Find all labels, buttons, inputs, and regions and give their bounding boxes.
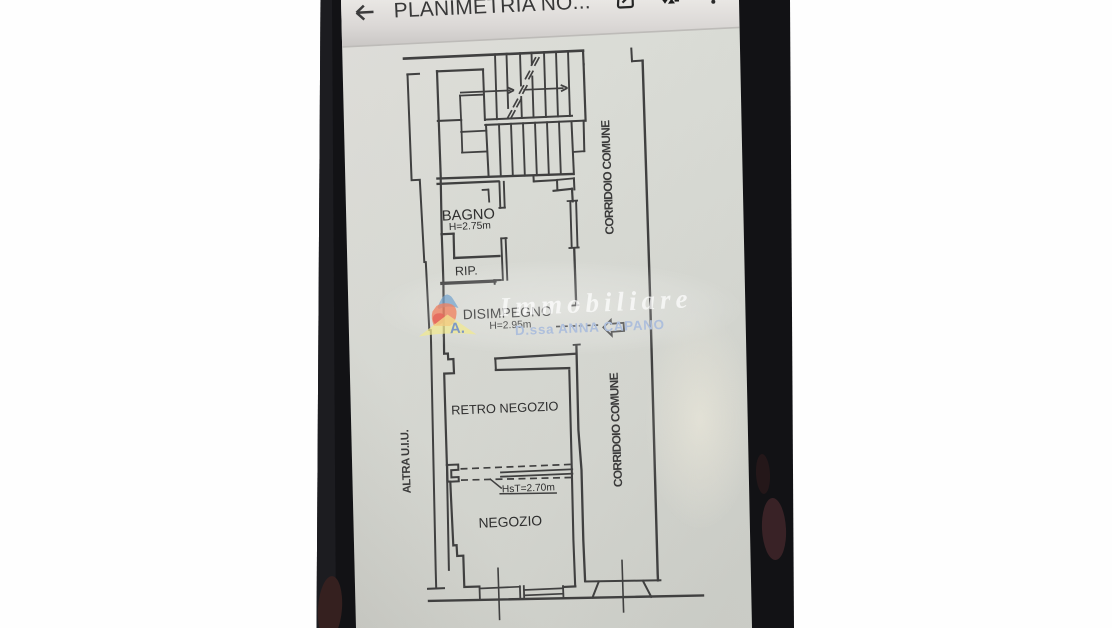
svg-text:ALTRA U.I.U.: ALTRA U.I.U. (399, 429, 414, 493)
svg-text:A.: A. (449, 320, 465, 338)
svg-text:NEGOZIO: NEGOZIO (478, 513, 542, 531)
svg-text:H=2.75m: H=2.75m (449, 220, 491, 233)
